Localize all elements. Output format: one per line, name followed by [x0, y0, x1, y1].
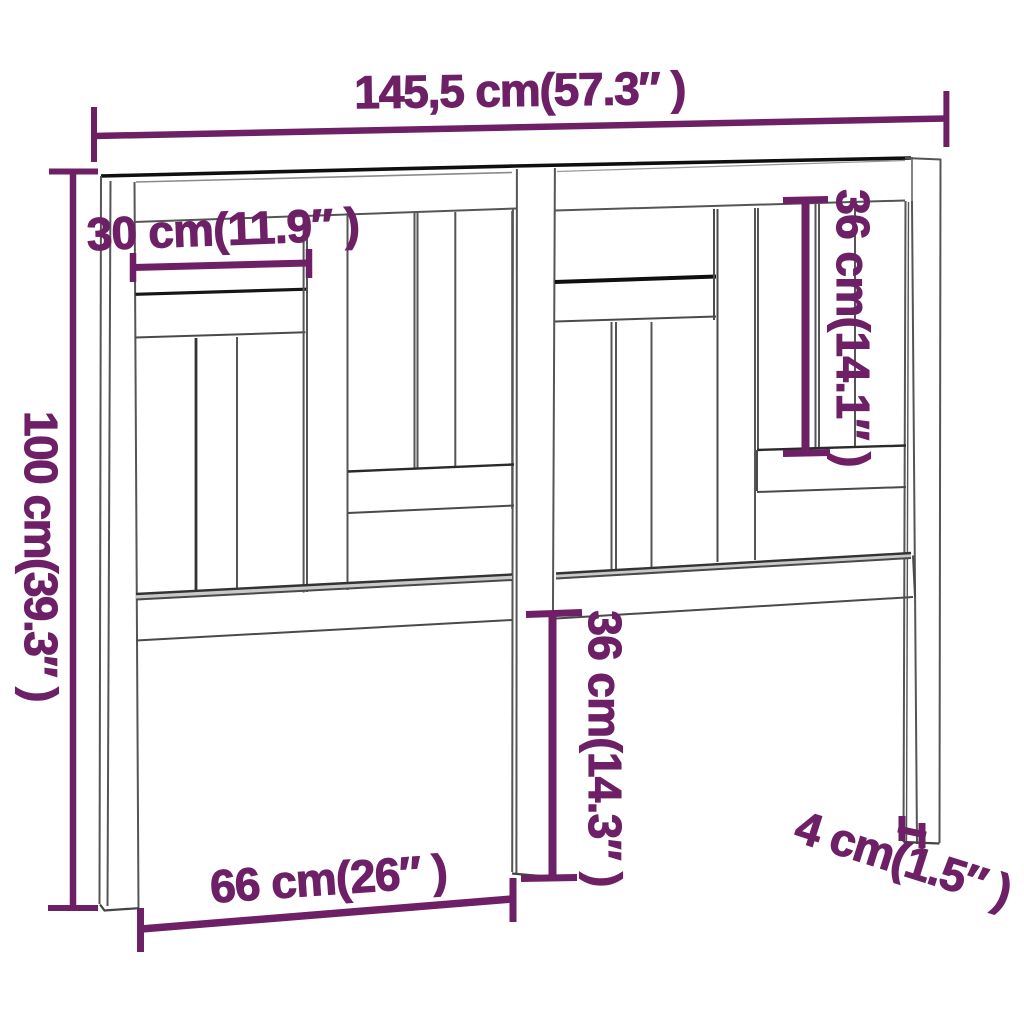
svg-text:30 cm(11.9″ ): 30 cm(11.9″ ): [86, 198, 360, 260]
svg-text:100 cm(39.3″ ): 100 cm(39.3″ ): [15, 411, 67, 701]
svg-text:36 cm(14.3″ ): 36 cm(14.3″ ): [579, 610, 631, 886]
svg-text:36 cm(14.1″ ): 36 cm(14.1″ ): [827, 189, 879, 467]
svg-text:145,5 cm(57.3″ ): 145,5 cm(57.3″ ): [354, 62, 686, 119]
